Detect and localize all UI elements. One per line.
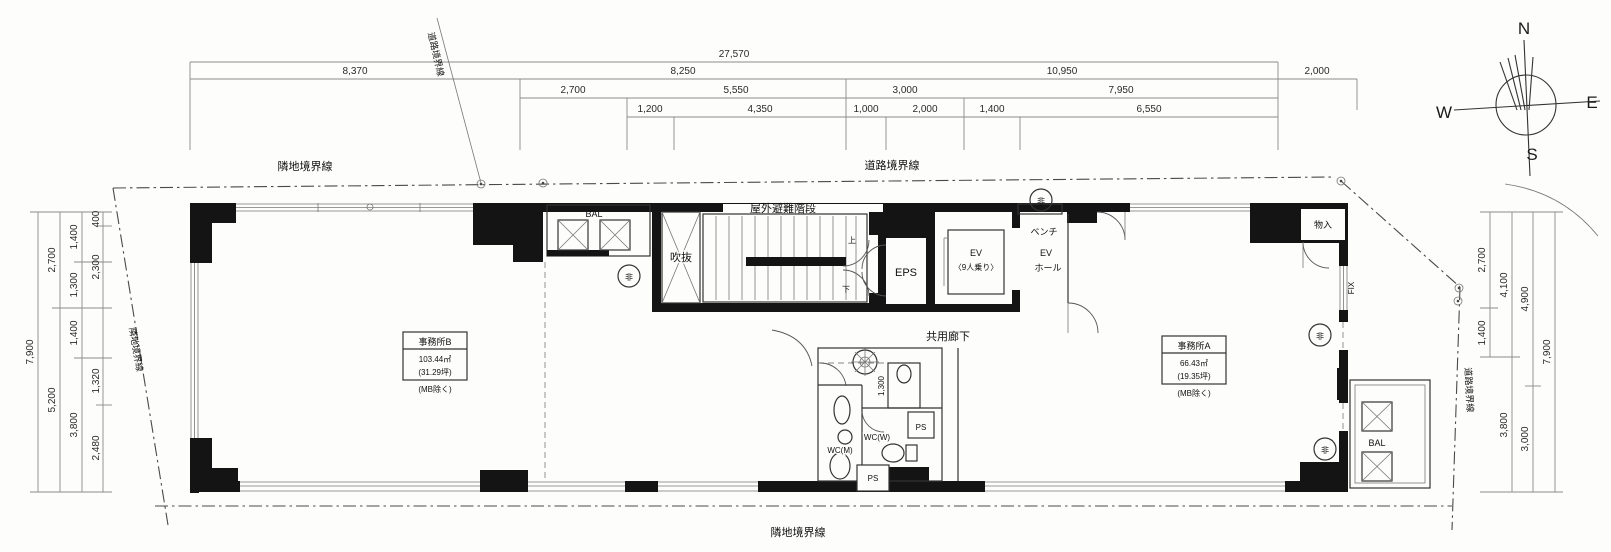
dim-right: 4,900 (1520, 286, 1531, 311)
dim-top: 1,200 (637, 104, 662, 115)
ps-upper-label: PS (916, 423, 927, 432)
dim-top: 27,570 (719, 49, 750, 60)
office-a-name: 事務所A (1177, 340, 1210, 351)
dim-top: 4,350 (747, 104, 772, 115)
floor-plan-drawing: 27,570 8,370 8,250 10,950 2,000 2,700 5,… (0, 0, 1611, 552)
compass-west-label: W (1436, 103, 1452, 122)
escape-stair: 屋外避難階段 上 下 (703, 201, 883, 302)
dim-top: 7,950 (1108, 85, 1133, 96)
ev-label: EV (970, 248, 982, 258)
emergency-marker-1: 非 (618, 265, 640, 287)
office-a-tsubo: (19.35坪) (1177, 372, 1211, 381)
office-b-area: 103.44㎡ (419, 355, 451, 364)
dim-left: 400 (91, 210, 102, 227)
dim-left: 1,300 (69, 272, 80, 297)
emergency-label: 非 (1316, 331, 1324, 341)
stair-down-marker: 下 (842, 285, 850, 294)
dim-left: 2,700 (47, 247, 58, 272)
wc-w-label: WC(W) (864, 433, 891, 442)
dim-top: 8,370 (342, 66, 367, 77)
ev-hall-label-1: EV (1040, 248, 1052, 258)
dim-top: 2,000 (912, 104, 937, 115)
dim-right: 1,400 (1477, 320, 1488, 345)
dim-right: 2,700 (1477, 247, 1488, 272)
dim-top: 3,000 (892, 85, 917, 96)
emergency-label: 非 (1037, 196, 1045, 206)
office-a-area: 66.43㎡ (1180, 359, 1208, 368)
office-b-note: (MB除く) (418, 384, 452, 394)
wc-m-label: WC(M) (827, 446, 853, 455)
emergency-marker-3: 非 (1309, 324, 1331, 346)
emergency-label: 非 (625, 272, 633, 282)
dim-left: 5,200 (47, 387, 58, 412)
boundary-label-top-slant: 道路境界線 (426, 31, 447, 77)
dim-top: 1,400 (979, 104, 1004, 115)
dim-left: 1,400 (69, 224, 80, 249)
dimension-chain-right: 2,700 1,400 4,100 3,800 4,900 3,000 7,90… (1477, 212, 1563, 492)
dim-top: 8,250 (670, 66, 695, 77)
compass-rose: N S W E (1436, 19, 1600, 176)
compass-north-label: N (1518, 19, 1530, 38)
ps-lower-label: PS (868, 474, 879, 483)
escape-stair-label: 屋外避難階段 (750, 201, 816, 215)
dim-top: 2,700 (560, 85, 585, 96)
dim-right: 7,900 (1542, 339, 1553, 364)
compass-south-label: S (1526, 145, 1537, 164)
dim-left: 7,900 (25, 339, 36, 364)
dim-interior-wc: 1,300 (877, 375, 886, 396)
ev-hall: ベンチ EV ホール (1018, 204, 1125, 333)
balcony-top: BAL (547, 205, 650, 256)
dim-right: 3,000 (1520, 426, 1531, 451)
dim-left: 3,800 (69, 412, 80, 437)
balcony-right-label: BAL (1368, 438, 1385, 448)
balcony-top-label: BAL (585, 209, 602, 219)
site-boundaries: 隣地境界線 道路境界線 隣地境界線 道路境界線 隣地境界線 道路境界線 (113, 18, 1598, 539)
emergency-label: 非 (1321, 445, 1329, 455)
dim-top: 2,000 (1304, 66, 1329, 77)
dim-left: 1,320 (91, 368, 102, 393)
building-walls (190, 203, 1348, 493)
dim-top: 1,000 (853, 104, 878, 115)
ev-hall-label-2: ホール (1034, 263, 1061, 273)
office-b-label: 事務所B 103.44㎡ (31.29坪) (MB除く) (403, 332, 467, 394)
column-marker (851, 348, 879, 376)
dim-left: 2,300 (91, 254, 102, 279)
boundary-label-right-slant: 道路境界線 (1463, 367, 1476, 413)
dimension-chain-top: 27,570 8,370 8,250 10,950 2,000 2,700 5,… (190, 49, 1357, 150)
dim-right: 3,800 (1499, 412, 1510, 437)
fix-window-label: FIX (1347, 281, 1356, 294)
corridor-label: 共用廊下 (926, 329, 970, 343)
office-b-name: 事務所B (418, 336, 451, 347)
eps-label: EPS (895, 267, 917, 279)
dim-top: 5,550 (723, 85, 748, 96)
bench-label: ベンチ (1030, 227, 1057, 237)
ev-capacity-label: 〈9人乗り〉 (954, 262, 998, 272)
storage-label: 物入 (1314, 219, 1332, 230)
void-label: 吹抜 (670, 250, 692, 264)
dimension-chain-left: 7,900 2,700 5,200 1,400 1,300 1,400 3,80… (25, 210, 112, 492)
dim-top: 10,950 (1047, 66, 1078, 77)
boundary-label-top-left: 隣地境界線 (278, 159, 333, 173)
balcony-right: BAL (1350, 380, 1430, 488)
wc-block: PS WC(M) WC(W) PS 1,300 (818, 348, 958, 491)
boundary-label-left-slant: 隣地境界線 (127, 326, 146, 372)
floor-plan-page: 27,570 8,370 8,250 10,950 2,000 2,700 5,… (0, 0, 1611, 552)
emergency-marker-4: 非 (1314, 438, 1336, 460)
void-shaft: 吹抜 (662, 212, 700, 303)
stair-up-marker: 上 (848, 236, 856, 245)
dim-left: 2,480 (91, 435, 102, 460)
office-b-tsubo: (31.29坪) (418, 368, 452, 377)
dim-left: 1,400 (69, 320, 80, 345)
boundary-label-top-right: 道路境界線 (865, 158, 920, 172)
office-a-note: (MB除く) (1177, 388, 1211, 398)
dim-top: 6,550 (1136, 104, 1161, 115)
dim-right: 4,100 (1499, 272, 1510, 297)
office-a-label: 事務所A 66.43㎡ (19.35坪) (MB除く) (1162, 336, 1226, 398)
boundary-label-bottom: 隣地境界線 (771, 525, 826, 539)
compass-east-label: E (1586, 93, 1597, 112)
